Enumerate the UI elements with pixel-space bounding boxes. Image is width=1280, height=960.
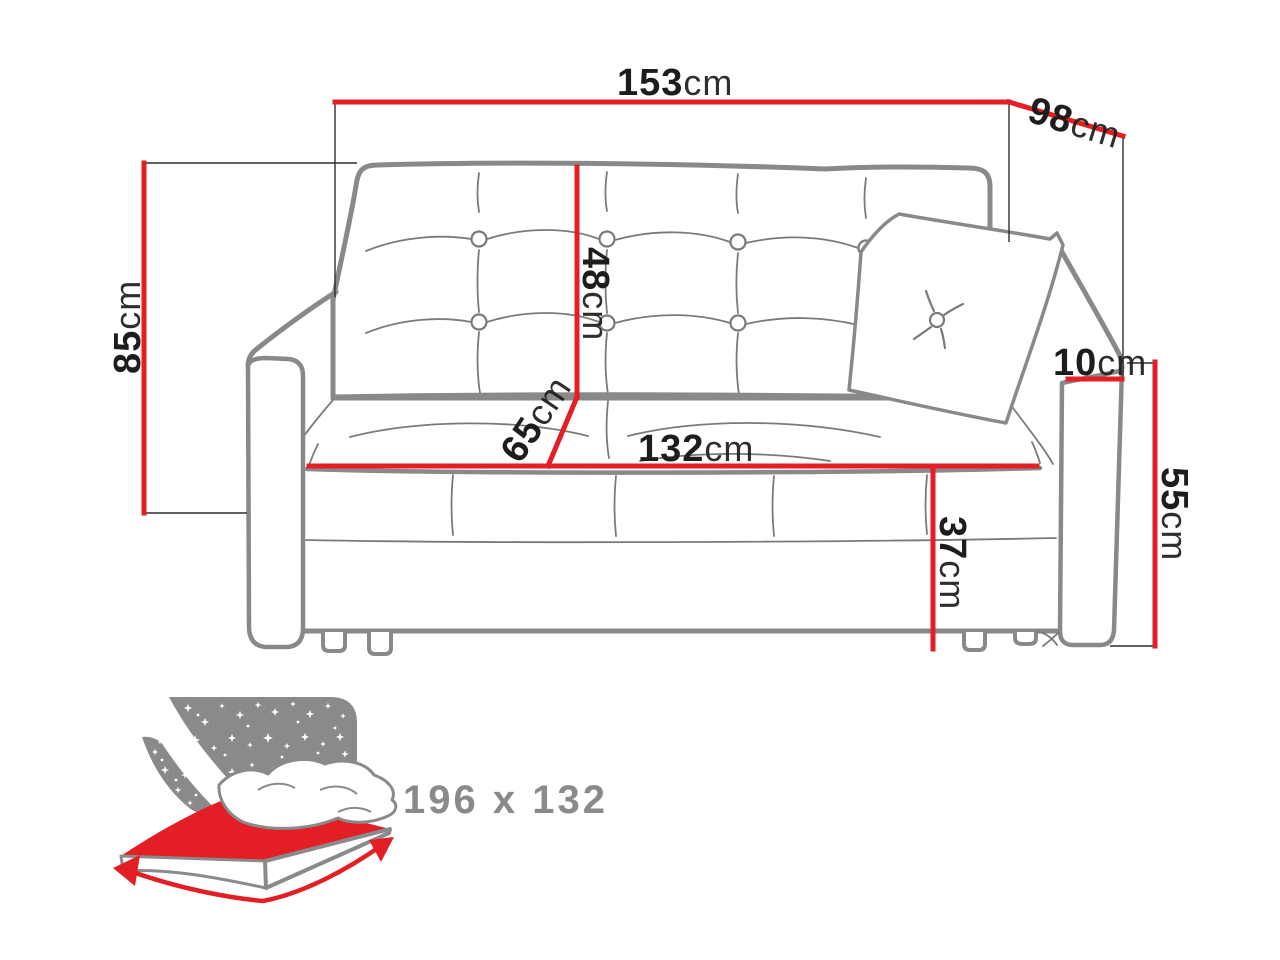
label-overall-width: 153cm: [617, 62, 733, 104]
label-backrest-height: 48cm: [574, 247, 616, 341]
sofa-dimension-diagram: 153cm 98cm 85cm 48cm 65cm 132cm 37cm 10c…: [0, 0, 1280, 960]
leg-front-right-2: [1015, 632, 1036, 644]
left-armrest: [248, 358, 303, 647]
leg-front-left-2: [369, 632, 391, 654]
sofa-drawing: [248, 163, 1122, 654]
right-armrest: [1060, 368, 1122, 645]
label-armrest-width: 10cm: [1053, 342, 1147, 384]
throw-pillow: [849, 214, 1063, 423]
pillow-outline: [849, 214, 1063, 423]
label-seat-width: 132cm: [638, 428, 754, 470]
label-overall-depth: 98cm: [1023, 89, 1125, 157]
label-overall-height: 85cm: [107, 280, 149, 374]
sleep-function-icon: 196 x 132: [113, 697, 608, 901]
label-armrest-height: 55cm: [1153, 467, 1195, 561]
left-armrest-ridge: [248, 292, 336, 366]
leg-front-left: [323, 632, 345, 651]
diagram-canvas: 153cm 98cm 85cm 48cm 65cm 132cm 37cm 10c…: [0, 0, 1280, 960]
leg-front-right: [964, 632, 985, 650]
blanket: [219, 759, 396, 828]
sofa-legs: [323, 632, 1036, 654]
mattress-side-front: [121, 856, 266, 888]
label-seat-height: 37cm: [931, 516, 973, 610]
sleep-dimensions-label: 196 x 132: [403, 778, 608, 822]
blanket-outline: [219, 759, 396, 828]
